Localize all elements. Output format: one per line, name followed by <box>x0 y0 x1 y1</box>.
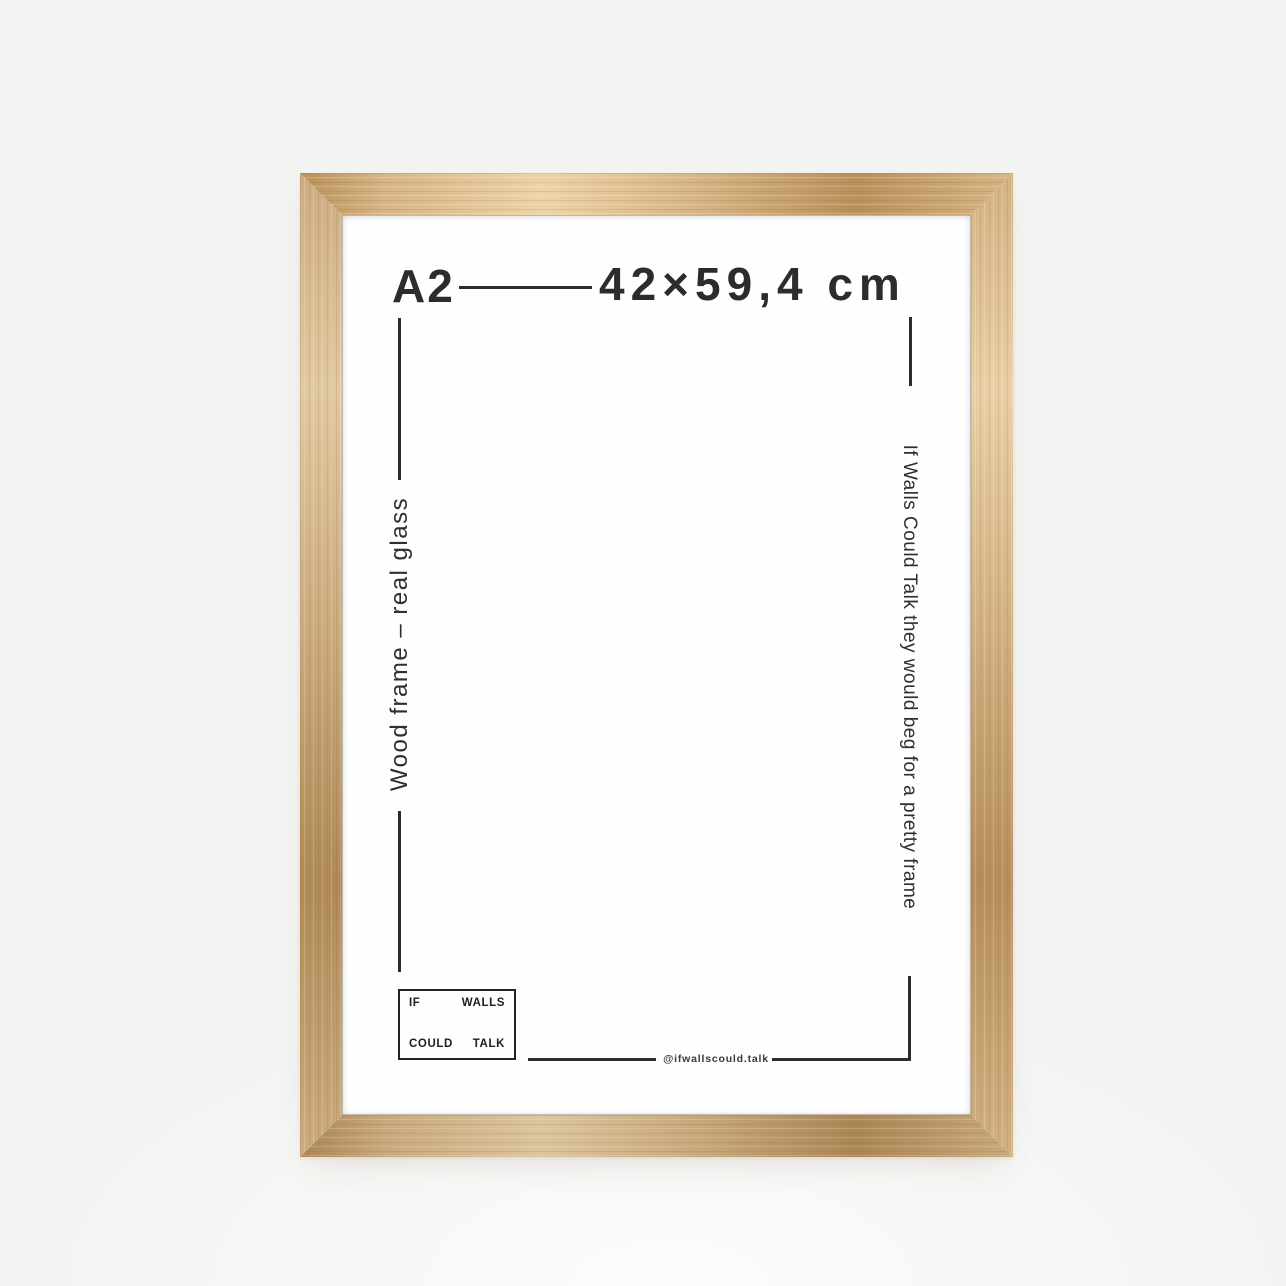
dimensions-label: 42×59,4 cm <box>599 261 906 307</box>
bottom-rule-left <box>528 1058 656 1061</box>
frame-bar-bottom <box>300 1115 1013 1157</box>
logo-word-if: IF <box>409 998 420 1010</box>
right-note: If Walls Could Talk they would beg for a… <box>898 445 920 910</box>
logo-row-top: IF WALLS <box>409 998 505 1010</box>
left-rule-bottom <box>398 811 401 972</box>
product-photo: A2 42×59,4 cm Wood frame – real glass If… <box>0 0 1286 1286</box>
bottom-rule-right <box>772 1058 910 1061</box>
logo-word-talk: TALK <box>473 1039 505 1051</box>
size-label: A2 <box>392 263 455 309</box>
logo-row-bottom: COULD TALK <box>409 1039 505 1051</box>
frame-bar-top <box>300 173 1013 215</box>
right-rule-top <box>909 317 912 386</box>
paper-insert <box>342 215 971 1115</box>
frame-bar-right <box>971 173 1013 1157</box>
instagram-handle: @ifwallscould.talk <box>663 1053 769 1065</box>
logo-word-could: COULD <box>409 1039 453 1051</box>
title-rule <box>459 286 592 289</box>
frame-bar-left <box>300 173 342 1157</box>
right-rule-bottom <box>908 976 911 1061</box>
left-rule-top <box>398 318 401 480</box>
left-note: Wood frame – real glass <box>386 497 414 791</box>
logo-box: IF WALLS COULD TALK <box>398 989 516 1060</box>
logo-word-walls: WALLS <box>462 998 505 1010</box>
